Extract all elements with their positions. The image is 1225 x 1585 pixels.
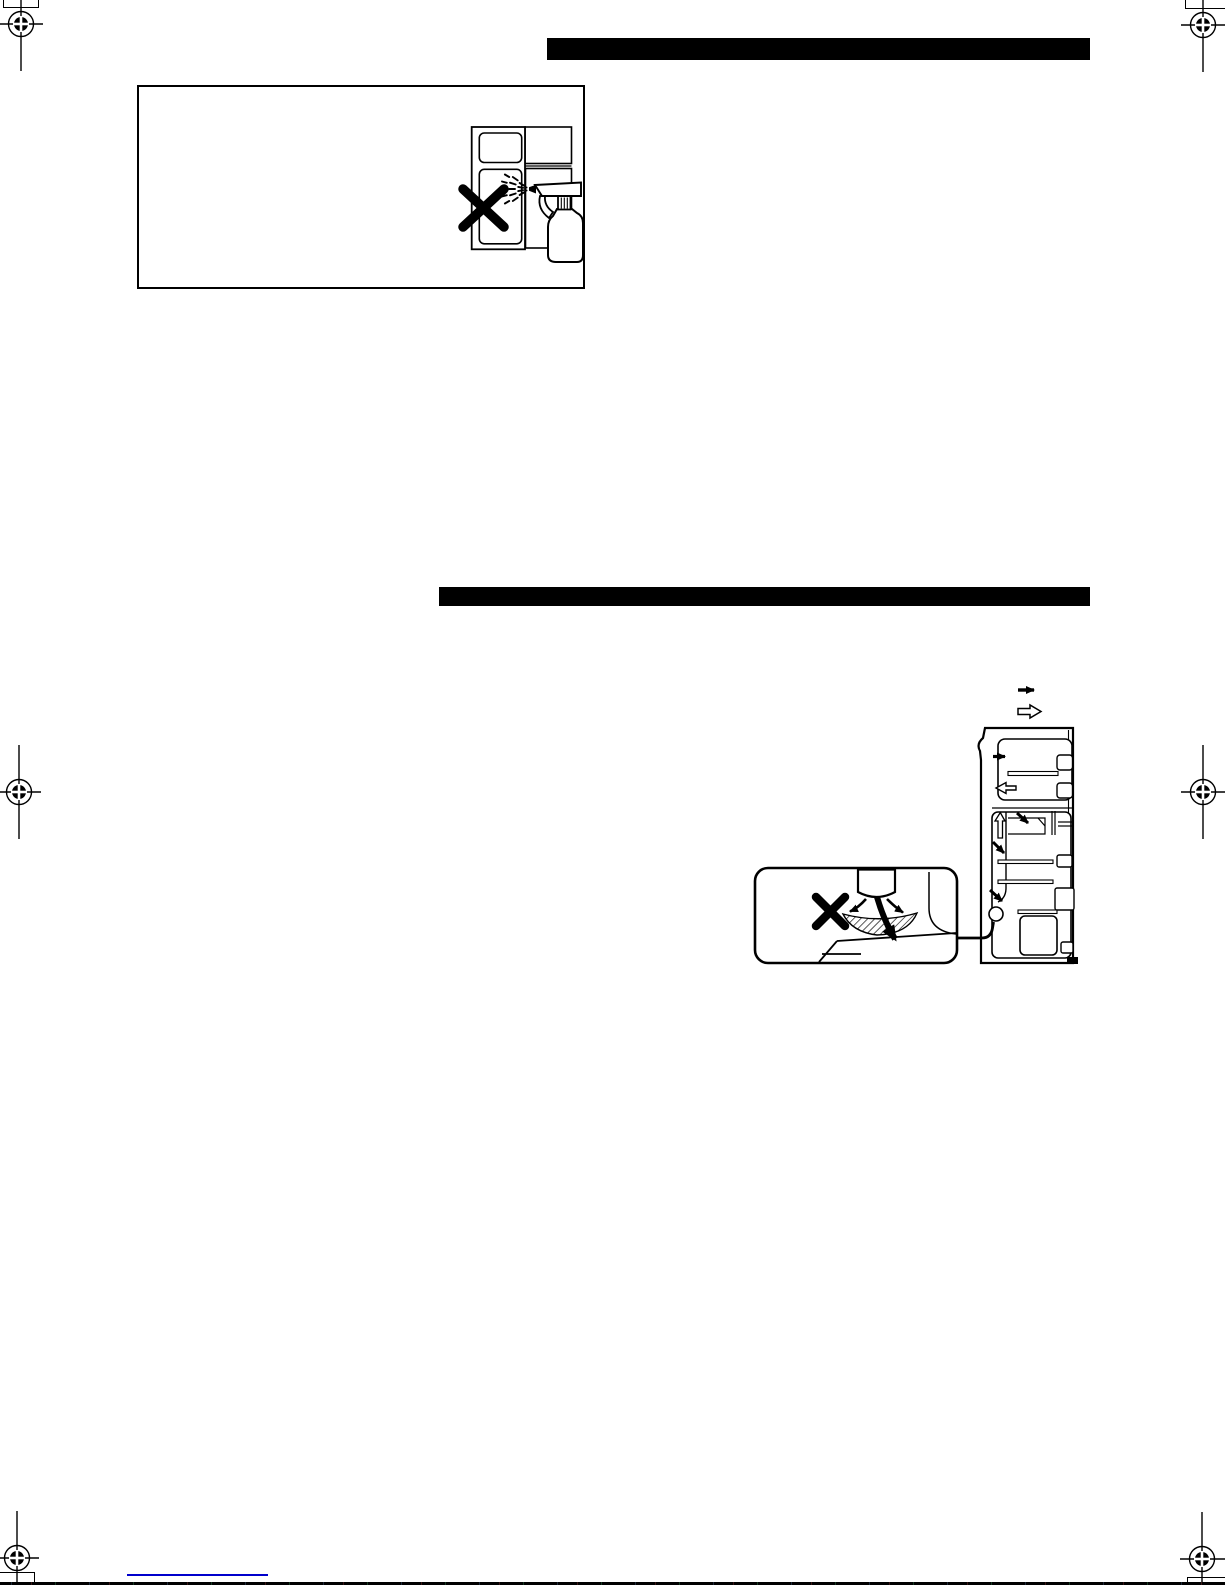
- trim-box-top-left: [3, 0, 39, 8]
- registration-mark-top-left: [0, 0, 69, 89]
- registration-mark-bottom-right: [1154, 1494, 1225, 1585]
- freezer-door-bin-icon: [1057, 783, 1073, 798]
- refrigerator-cross-section-icon: [957, 728, 1078, 964]
- no-spray-on-refrigerator-illustration: [455, 119, 587, 269]
- section-header-bar-second: [439, 587, 1090, 606]
- vent-warning-inset: [755, 868, 957, 963]
- vent-location-circle: [989, 907, 1003, 921]
- door-foot: [1067, 957, 1078, 964]
- legend-hollow-arrow-icon: [1018, 705, 1041, 718]
- freezer-door-bin-icon: [1057, 755, 1073, 770]
- section-header-bar-top: [547, 38, 1090, 60]
- registration-mark-middle-left: [0, 727, 67, 857]
- manual-page: [0, 0, 1225, 1585]
- trim-box-top-right: [1185, 0, 1225, 9]
- footer-link-underline[interactable]: [127, 1574, 268, 1576]
- refrigerator-airflow-diagram: [740, 650, 1090, 980]
- spray-warning-figure-box: [137, 85, 585, 289]
- crisper-drawer-icon: [1020, 916, 1057, 955]
- registration-mark-top-right: [1155, 0, 1225, 90]
- page-bottom-trim-line: [0, 1582, 1225, 1585]
- air-vent-icon: [858, 870, 895, 898]
- registration-mark-middle-right: [1155, 727, 1225, 857]
- freezer-shelf-icon: [1008, 772, 1058, 776]
